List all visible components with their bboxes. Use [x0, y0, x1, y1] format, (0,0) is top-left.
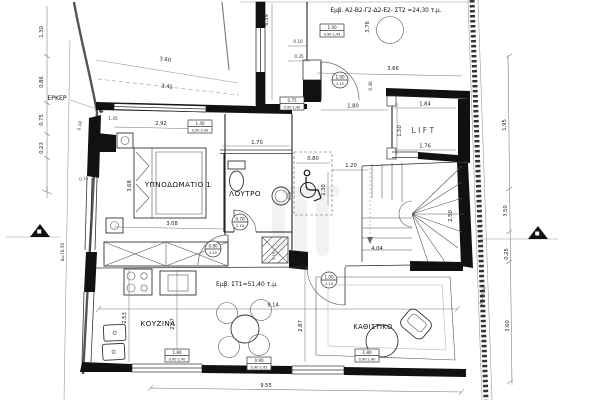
floor-plan: 1.30 0.86 0.75 0.23 0.18 0.15 Δ=78.50 1.…	[0, 0, 600, 400]
dim-up-366: 3.66	[387, 66, 399, 72]
dim-lift-176: 1.76	[419, 144, 431, 150]
stove	[124, 269, 152, 295]
dim-bed-292: 2.92	[155, 121, 167, 127]
dim-right-025: 0.25	[504, 248, 510, 260]
door-tag-living: 1.00 2.15	[321, 272, 337, 288]
dim-wc-080: 0.80	[307, 156, 319, 162]
dim-left-3: 0.75	[39, 114, 45, 126]
toilet	[228, 161, 245, 191]
dim-wall-018: 0.18	[76, 120, 83, 130]
svg-text:0,90 2,40: 0,90 2,40	[169, 358, 186, 362]
bathroom-label: ΛΟΥΤΡΟ	[229, 189, 261, 198]
svg-text:0,90 2,40: 0,90 2,40	[359, 358, 376, 362]
svg-text:2.15: 2.15	[325, 282, 333, 286]
dim-right-360: 3.60	[505, 320, 511, 332]
dim-shaft-070: 0.70	[272, 251, 276, 260]
door-tag-bath: 0.70 2.10	[232, 214, 248, 230]
column-circle	[377, 17, 404, 44]
dim-left-4: 0.23	[39, 142, 45, 154]
bottom-wall: 9.55	[80, 362, 466, 395]
level-left: Δ=78.50	[60, 242, 65, 261]
living-label: ΚΑΘΙΣΤΙΚΟ	[353, 323, 392, 331]
nightstand-bottom	[106, 218, 123, 233]
living-room: 2.87 ΚΑΘΙΣΤΙΚΟ	[298, 270, 455, 362]
window-tag-upper2: 1.00 0,90 2,45	[320, 24, 344, 37]
dim-bed-308: 3.08	[166, 221, 178, 227]
svg-text:0,90 2,40: 0,90 2,40	[192, 129, 209, 133]
dim-kit-253: 2.53	[122, 312, 128, 324]
dim-up-376: 3.76	[365, 21, 371, 33]
dim-kit-267: 2.67	[170, 318, 176, 330]
dim-up-639: 6.39	[264, 14, 270, 26]
dim-hall-180: 1.80	[347, 104, 359, 110]
svg-text:0,90 2,45: 0,90 2,45	[324, 33, 341, 37]
svg-text:2.15: 2.15	[336, 82, 344, 86]
dim-bath-170: 1.70	[251, 140, 263, 146]
svg-text:0.75: 0.75	[287, 98, 297, 103]
svg-text:2.10: 2.10	[209, 251, 217, 255]
staircase: 4.04 2.50	[362, 162, 473, 271]
dim-bottom-955: 9.55	[260, 383, 272, 389]
dim-wc-120: 1.20	[345, 163, 357, 169]
dim-up-010: 0.10	[293, 39, 303, 44]
top-dimensions: 3.60 3.45	[159, 56, 173, 90]
level-marker-right	[480, 226, 558, 239]
svg-text:1.00: 1.00	[327, 25, 337, 30]
dim-stair-404: 4.04	[371, 246, 383, 252]
erker-label: ΕΡΚΕΡ	[47, 95, 67, 102]
dim-wc-130: 1.30	[321, 184, 327, 196]
svg-text:1.00: 1.00	[324, 275, 334, 280]
dim-right-350: 3.50	[503, 205, 509, 217]
kitchen-sink	[101, 324, 127, 360]
upper-unit-area-label: Εμβ. Α2-Β2-Γ2-Δ2-Ε2- ΣΤ2 =24,30 τ.μ.	[330, 8, 441, 14]
nightstand-top	[117, 133, 133, 148]
dim-left-2: 0.86	[39, 76, 45, 88]
svg-text:0,90 2,40: 0,90 2,40	[284, 106, 301, 110]
window-tag-dining: 0.90 0,90 2,45	[247, 357, 271, 370]
window-tag-kitchen: 1.80 0,90 2,40	[165, 349, 189, 362]
kitchen: ΚΟΥΖΙΝΑ 2.53 2.67	[101, 269, 196, 362]
level-marker-left	[6, 224, 60, 237]
door-tag-bedroom: 0.80 2.10	[205, 241, 221, 257]
svg-text:0.90: 0.90	[254, 358, 264, 363]
svg-text:2.10: 2.10	[236, 224, 244, 228]
dim-wall-015: 0.15	[79, 175, 89, 182]
dim-up-035: 0.35	[294, 54, 304, 59]
door-tag-upper: 1.00 2.15	[332, 72, 348, 88]
svg-text:0.70: 0.70	[235, 217, 245, 222]
dining-table	[217, 300, 272, 358]
dim-left-1: 1.30	[39, 26, 45, 38]
window-tag-upper: 0.75 0,90 2,40	[280, 97, 304, 110]
window-tag-bedroom: 1.40 0,90 2,40	[188, 120, 212, 133]
svg-text:1.80: 1.80	[172, 350, 182, 355]
watermark	[272, 186, 340, 256]
dim-top-360: 3.60	[159, 56, 171, 64]
dim-bed-368: 3.68	[127, 180, 133, 192]
svg-text:0.80: 0.80	[208, 244, 218, 249]
svg-text:1.40: 1.40	[195, 121, 205, 126]
dim-up-030: 0.30	[368, 81, 373, 91]
armchair	[398, 307, 434, 342]
floor-plan-canvas: 1.30 0.86 0.75 0.23 0.18 0.15 Δ=78.50 1.…	[0, 0, 600, 400]
dim-right-195: 1.95	[502, 119, 508, 131]
dim-lift-150: 1.50	[397, 125, 403, 137]
level-right: Δ=48.90	[478, 286, 487, 305]
svg-text:1.00: 1.00	[335, 75, 345, 80]
dim-liv-287: 2.87	[298, 320, 304, 332]
lift-label: LIFT	[411, 126, 436, 135]
lift-shaft: LIFT 1.84 1.76 1.50	[386, 88, 470, 163]
svg-text:0,90 2,45: 0,90 2,45	[251, 366, 268, 370]
corridor: Εμβ. ΣΤ1=51,40 τ.μ. 9.14	[96, 265, 460, 312]
main-unit-area-label: Εμβ. ΣΤ1=51,40 τ.μ.	[216, 281, 278, 288]
dim-top-345: 3.45	[161, 84, 173, 91]
dim-bed-145: 1.45	[108, 116, 118, 121]
dim-stair-250: 2.50	[448, 210, 454, 222]
svg-text:1.80: 1.80	[362, 350, 372, 355]
window-tag-living: 1.80 0,90 2,40	[355, 349, 379, 362]
dim-lift-184: 1.84	[419, 102, 431, 108]
kitchen-unit	[160, 271, 196, 295]
bedroom-label: ΥΠΝΟΔΩΜΑΤΙΟ 1	[144, 180, 212, 189]
